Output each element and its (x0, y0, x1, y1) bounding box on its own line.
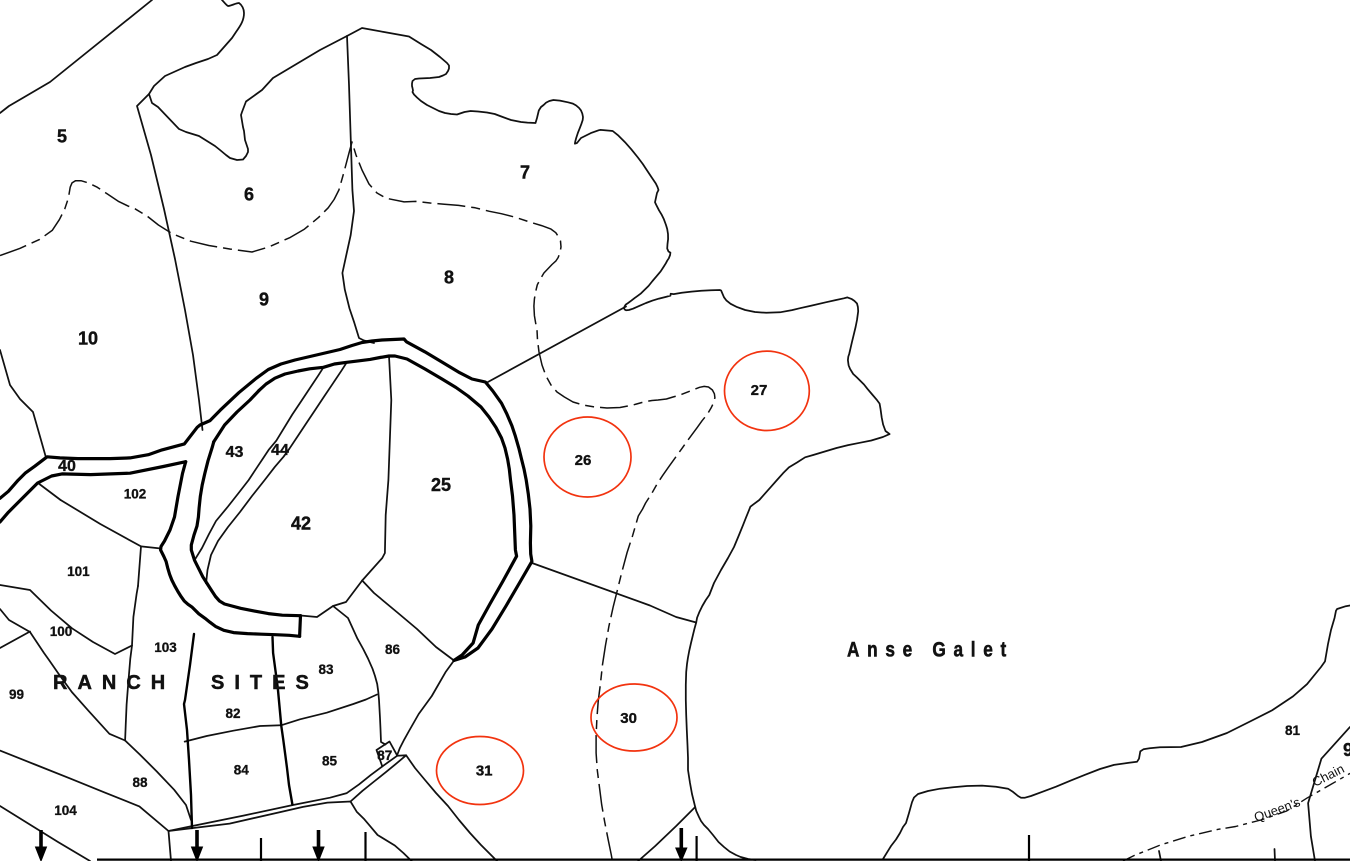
svg-text:104: 104 (54, 803, 77, 818)
svg-text:42: 42 (291, 514, 311, 534)
svg-text:102: 102 (124, 487, 147, 502)
svg-text:81: 81 (1285, 723, 1301, 738)
svg-text:Anse Galet: Anse Galet (847, 639, 1014, 662)
svg-text:83: 83 (318, 662, 334, 677)
svg-text:99: 99 (9, 687, 24, 702)
svg-text:9: 9 (1343, 740, 1350, 760)
svg-text:10: 10 (78, 329, 98, 349)
svg-text:85: 85 (322, 754, 338, 769)
svg-text:26: 26 (575, 452, 592, 469)
svg-text:43: 43 (226, 444, 244, 461)
svg-text:6: 6 (244, 185, 254, 205)
svg-text:30: 30 (620, 710, 637, 727)
svg-text:100: 100 (50, 624, 73, 639)
svg-text:82: 82 (225, 706, 240, 721)
svg-text:9: 9 (259, 290, 269, 310)
svg-text:8: 8 (444, 268, 454, 288)
svg-text:101: 101 (67, 564, 90, 579)
svg-text:27: 27 (751, 382, 768, 399)
svg-text:RANCH: RANCH (53, 672, 175, 694)
svg-text:5: 5 (57, 127, 67, 147)
svg-text:87: 87 (377, 748, 392, 763)
svg-text:88: 88 (132, 775, 148, 790)
svg-text:86: 86 (385, 642, 401, 657)
svg-text:84: 84 (234, 762, 250, 777)
svg-text:25: 25 (431, 475, 451, 495)
svg-text:SITES: SITES (211, 672, 319, 694)
svg-text:44: 44 (271, 442, 289, 459)
svg-text:31: 31 (476, 763, 493, 780)
svg-text:7: 7 (520, 163, 530, 183)
svg-text:103: 103 (154, 640, 177, 655)
svg-text:40: 40 (58, 458, 76, 475)
